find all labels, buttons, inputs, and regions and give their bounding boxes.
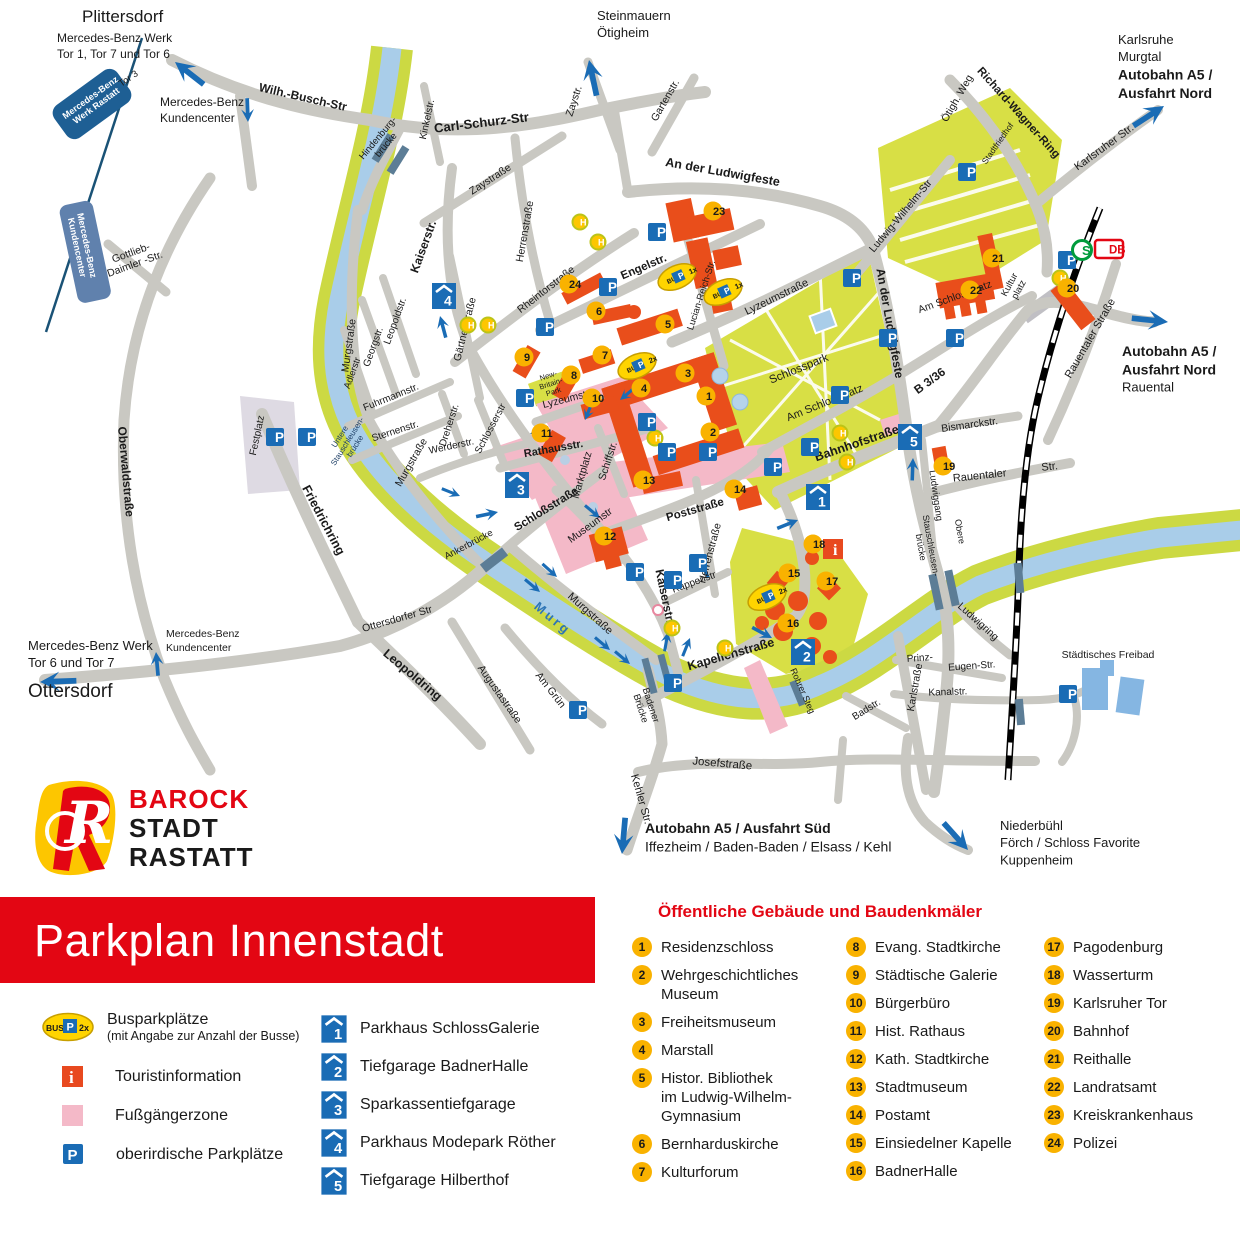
parkhaus-marker: 1 (321, 1015, 346, 1043)
buildings-heading: Öffentliche Gebäude und Baudenkmäler (658, 902, 982, 922)
[object SVGGElement]: 1 (706, 391, 712, 403)
parkhaus-icon: 5 (320, 1166, 348, 1196)
parking-marker: P (958, 163, 976, 181)
buildings-column-3: 17Pagodenburg18Wasserturm19Karlsruher To… (1044, 938, 1240, 1162)
parkhaus-legend-label: Tiefgarage BadnerHalle (360, 1058, 528, 1076)
building-legend-item-3: 3Freiheitsmuseum (632, 1013, 837, 1032)
street-label: Stauschleusen-brücke (911, 514, 942, 579)
building-legend-label: Bahnhof (1073, 1022, 1129, 1041)
building-legend-item-21: 21Reithalle (1044, 1050, 1240, 1069)
[object SVGGElement]: P (673, 573, 682, 588)
[object SVGGElement]: P (307, 430, 316, 445)
building-legend-item-22: 22Landratsamt (1044, 1078, 1240, 1097)
destination-label: Autobahn A5 / Ausfahrt SüdIffezheim / Ba… (645, 820, 891, 854)
building-legend-item-16: 16BadnerHalle (846, 1162, 1051, 1181)
[object SVGGElement]: 12 (604, 531, 616, 543)
legend-sublabel-busparkplaetze: (mit Angabe zur Anzahl der Busse) (107, 1029, 299, 1043)
direction-arrow-icon (1131, 308, 1169, 331)
destination-label: Ottersdorf (28, 681, 113, 702)
building-number-badge: 14 (846, 1105, 866, 1125)
building-number-badge: 23 (1044, 1105, 1064, 1125)
building-number-badge: 4 (632, 1040, 652, 1060)
buildings-column-1: 1Residenzschloss2Wehrgeschichtliches Mus… (632, 938, 837, 1191)
building-number-badge: 7 (632, 1162, 652, 1182)
parkhaus-icon: 4 (320, 1128, 348, 1158)
building-number-badge: 6 (632, 1134, 652, 1154)
[object SVGGElement]: P (698, 556, 707, 571)
[object SVGGElement]: H (672, 623, 679, 633)
building-legend-label: Residenzschloss (661, 938, 774, 957)
[object SVGGElement]: P (955, 331, 964, 346)
poi-marker: 23 (704, 202, 726, 221)
poi-marker: 18 (804, 535, 826, 554)
legend-busparkplaetze: BUS P 2x Busparkplätze (mit Angabe zur A… (42, 1012, 299, 1043)
building-legend-label: Marstall (661, 1041, 714, 1060)
bus-stop-marker: H (573, 215, 588, 230)
parking-marker: P (1059, 685, 1077, 703)
[object SVGGElement]: 23 (713, 206, 725, 218)
building-legend-item-20: 20Bahnhof (1044, 1022, 1240, 1041)
building-number-badge: 3 (632, 1012, 652, 1032)
poi-marker: 9 (515, 348, 534, 367)
bus-stop-marker: H (481, 318, 496, 333)
[object SVGGElement]: P (525, 391, 534, 406)
bus-stop-marker: H (665, 621, 680, 636)
[object SVGGElement]: 11 (541, 428, 553, 440)
street-label: Leopoldring (380, 646, 444, 703)
[object SVGGElement]: P (275, 430, 284, 445)
building-legend-label: Bürgerbüro (875, 994, 950, 1013)
parking-marker: P (658, 443, 676, 461)
direction-arrow-icon (440, 484, 462, 501)
building-legend-label: Karlsruher Tor (1073, 994, 1167, 1013)
bus-parking-icon: BUS P 2x (42, 1012, 94, 1042)
parkhaus-legend-list: 1Parkhaus SchlossGalerie2Tiefgarage Badn… (320, 1010, 556, 1200)
building-number-badge: 16 (846, 1161, 866, 1181)
[object SVGGElement]: 22 (970, 285, 982, 297)
building-number-badge: 20 (1044, 1021, 1064, 1041)
building-legend-label: Städtische Galerie (875, 966, 998, 985)
destination-label: Mercedes-Benz WerkTor 6 und Tor 7 (28, 638, 153, 670)
[object SVGGElement]: 2 (803, 649, 811, 665)
[object SVGGElement]: 21 (992, 253, 1004, 265)
parking-marker: P (638, 413, 656, 431)
building-legend-label: Kath. Stadtkirche (875, 1050, 989, 1069)
[object SVGGElement]: 6 (596, 306, 602, 318)
logo-emblem: R (35, 779, 117, 877)
street-label: Karlsruher Str. (1072, 122, 1136, 173)
destination-label: SteinmauernÖtigheim (597, 8, 671, 40)
[object SVGGElement]: 14 (734, 484, 747, 496)
[object SVGGElement]: S (1082, 243, 1091, 258)
[object SVGGElement]: 18 (813, 539, 825, 551)
poi-marker: 4 (632, 379, 651, 398)
parking-marker: P (664, 571, 682, 589)
[object SVGGElement]: 17 (826, 576, 838, 588)
[object SVGGElement]: H (655, 433, 662, 443)
legend-label-fussgaengerzone: Fußgängerzone (115, 1106, 228, 1125)
building-legend-label: Wehrgeschichtliches Museum (661, 966, 798, 1004)
[object SVGGElement]: 4 (641, 383, 648, 395)
building-number-badge: 10 (846, 993, 866, 1013)
parking-marker: P (843, 269, 861, 287)
bus-stop-marker: H (718, 641, 733, 656)
parking-marker: P (536, 318, 554, 336)
[object SVGGElement]: 20 (1067, 283, 1079, 295)
building-legend-label: Freiheitsmuseum (661, 1013, 776, 1032)
db-marker: DB (1095, 240, 1126, 258)
building-number-badge: 18 (1044, 965, 1064, 985)
[object SVGGElement]: H (580, 217, 587, 227)
parkhaus-icon: 2 (320, 1052, 348, 1082)
[object SVGGElement]: DB (1109, 245, 1126, 257)
svg-text:2x: 2x (79, 1023, 89, 1033)
street-label: Josefstraße (692, 755, 753, 772)
building-number-badge: 15 (846, 1133, 866, 1153)
poi-marker: 19 (934, 457, 956, 476)
parking-marker: P (298, 428, 316, 446)
freibad-buildings (1082, 660, 1144, 715)
parkhaus-legend-label: Parkhaus SchlossGalerie (360, 1020, 540, 1038)
building-legend-label: Polizei (1073, 1134, 1117, 1153)
[object SVGGElement]: 9 (524, 352, 530, 364)
[object SVGGElement]: 8 (571, 370, 577, 382)
parkhaus-legend-label: Sparkassentiefgarage (360, 1096, 516, 1114)
building-legend-label: Kreiskrankenhaus (1073, 1106, 1193, 1125)
destination-label: Autobahn A5 /Ausfahrt NordRauental (1122, 343, 1216, 395)
building-legend-label: Histor. Bibliothek im Ludwig-Wilhelm- Gy… (661, 1069, 792, 1126)
[object SVGGElement]: 4 (444, 293, 452, 309)
parking-marker: P (879, 329, 897, 347)
[object SVGGElement]: P (667, 445, 676, 460)
parkhaus-marker: 4 (321, 1129, 346, 1157)
building-legend-label: Kulturforum (661, 1163, 739, 1182)
destination-label: Mercedes-BenzKundencenter (160, 95, 244, 125)
building-legend-label: Pagodenburg (1073, 938, 1163, 957)
[object SVGGElement]: 2 (710, 427, 716, 439)
bus-stop-marker: H (833, 426, 848, 441)
[object SVGGElement]: H (725, 643, 732, 653)
[object SVGGElement]: 1 (818, 494, 826, 510)
street-label: Tor 3 (117, 68, 141, 89)
destination-label: Mercedes-Benz WerkTor 1, Tor 7 und Tor 6 (57, 31, 173, 61)
surface-parking-icon: P (63, 1144, 83, 1164)
[object SVGGElement]: P (840, 388, 849, 403)
building-legend-label: Stadtmuseum (875, 1078, 968, 1097)
parkhaus-legend-item-2: 2Tiefgarage BadnerHalle (320, 1048, 556, 1086)
bus-stop-marker: H (461, 318, 476, 333)
city-map-canvas: Wilh.-Busch-StrCarl-Schurz-StrZaystr.Kin… (0, 0, 1240, 895)
parkhaus-marker: 5 (898, 424, 922, 450)
parkhaus-legend-item-5: 5Tiefgarage Hilberthof (320, 1162, 556, 1200)
building-legend-item-13: 13Stadtmuseum (846, 1078, 1051, 1097)
building-legend-label: Wasserturm (1073, 966, 1153, 985)
parkhaus-legend-item-1: 1Parkhaus SchlossGalerie (320, 1010, 556, 1048)
[object SVGGElement]: 16 (787, 618, 799, 630)
legend-touristinformation: i Touristinformation (62, 1066, 241, 1087)
logo-text: BAROCK STADT RASTATT (129, 785, 253, 872)
direction-arrow-icon (434, 314, 451, 339)
[object SVGGElement]: P (967, 165, 976, 180)
building-legend-item-18: 18Wasserturm (1044, 966, 1240, 985)
parkhaus-legend-item-4: 4Parkhaus Modepark Röther (320, 1124, 556, 1162)
building-number-badge: 24 (1044, 1133, 1064, 1153)
building-legend-item-15: 15Einsiedelner Kapelle (846, 1134, 1051, 1153)
parking-marker: P (764, 458, 782, 476)
parking-marker: P (831, 386, 849, 404)
svg-text:i: i (69, 1068, 74, 1087)
legend-fussgaengerzone: Fußgängerzone (62, 1105, 228, 1126)
building-legend-label: Hist. Rathaus (875, 1022, 965, 1041)
building-legend-label: Reithalle (1073, 1050, 1131, 1069)
[object SVGGElement]: 7 (602, 350, 608, 362)
poi-marker: 1 (697, 387, 716, 406)
building-number-badge: 19 (1044, 993, 1064, 1013)
building-legend-label: Einsiedelner Kapelle (875, 1134, 1012, 1153)
building-legend-item-8: 8Evang. Stadtkirche (846, 938, 1051, 957)
parkhaus-marker: 3 (505, 472, 529, 498)
building-legend-item-9: 9Städtische Galerie (846, 966, 1051, 985)
building-legend-item-7: 7Kulturforum (632, 1163, 837, 1182)
poi-marker: 24 (560, 275, 583, 294)
[object SVGGElement]: 2 (334, 1065, 342, 1081)
street-label: Eugen-Str. (948, 659, 996, 673)
poi-marker: 14 (725, 480, 748, 499)
building-number-badge: 9 (846, 965, 866, 985)
svg-text:P: P (67, 1022, 74, 1034)
buildings-column-2: 8Evang. Stadtkirche9Städtische Galerie10… (846, 938, 1051, 1190)
destination-label: Mercedes-BenzKundencenter (166, 628, 240, 654)
[object SVGGElement]: 3 (685, 368, 691, 380)
building-legend-item-10: 10Bürgerbüro (846, 994, 1051, 1013)
title-banner: Parkplan Innenstadt (0, 897, 595, 983)
building-legend-label: Landratsamt (1073, 1078, 1156, 1097)
[object SVGGElement]: H (840, 428, 847, 438)
[object SVGGElement]: 3 (334, 1103, 342, 1119)
poi-marker: 2 (701, 423, 720, 442)
logo-line2: STADT (129, 814, 253, 843)
[object SVGGElement]: H (847, 457, 854, 467)
parkhaus-marker: 3 (321, 1091, 346, 1119)
parking-marker: P (599, 278, 617, 296)
building-number-badge: 5 (632, 1068, 652, 1088)
parkhaus-legend-label: Parkhaus Modepark Röther (360, 1134, 556, 1152)
destination-label: Plittersdorf (82, 7, 164, 26)
parkhaus-marker: 2 (791, 639, 815, 665)
[object SVGGElement]: P (888, 331, 897, 346)
building-number-badge: 22 (1044, 1077, 1064, 1097)
parkhaus-marker: 2 (321, 1053, 346, 1081)
street-label: Städtisches Freibad (1062, 649, 1155, 661)
parkhaus-legend-item-3: 3Sparkassentiefgarage (320, 1086, 556, 1124)
[object SVGGElement]: 24 (569, 279, 582, 291)
parking-marker: P (569, 701, 587, 719)
bus-stop-marker: H (591, 235, 606, 250)
building-legend-item-5: 5Histor. Bibliothek im Ludwig-Wilhelm- G… (632, 1069, 837, 1126)
building-legend-item-1: 1Residenzschloss (632, 938, 837, 957)
building-legend-item-24: 24Polizei (1044, 1134, 1240, 1153)
parking-marker: P (699, 443, 717, 461)
building-number-badge: 8 (846, 937, 866, 957)
poi-marker: 20 (1058, 279, 1080, 298)
[object SVGGElement]: P (578, 703, 587, 718)
poi-marker: 7 (593, 346, 612, 365)
building-legend-label: Evang. Stadtkirche (875, 938, 1001, 957)
svg-text:BUS: BUS (46, 1023, 64, 1033)
building-legend-label: Bernharduskirche (661, 1135, 779, 1154)
street-label: Kaiserstr. (407, 219, 439, 275)
[object SVGGElement]: 1 (334, 1027, 342, 1043)
parkhaus-marker: 5 (321, 1167, 346, 1195)
[object SVGGElement]: i (833, 542, 838, 559)
building-number-badge: 13 (846, 1077, 866, 1097)
direction-arrow-icon (678, 636, 695, 658)
legend-oberirdische-parkplaetze: P oberirdische Parkplätze (63, 1144, 283, 1164)
poi-marker: 8 (562, 366, 581, 385)
parking-marker: P (801, 438, 819, 456)
[object SVGGElement]: P (1068, 687, 1077, 702)
poi-marker: 3 (676, 364, 695, 383)
page-title: Parkplan Innenstadt (0, 897, 595, 967)
building-legend-item-6: 6Bernharduskirche (632, 1135, 837, 1154)
building-legend-item-11: 11Hist. Rathaus (846, 1022, 1051, 1041)
logo-line1: BAROCK (129, 785, 253, 814)
building-legend-item-14: 14Postamt (846, 1106, 1051, 1125)
building-number-badge: 2 (632, 965, 652, 985)
[object SVGGElement]: 5 (665, 319, 671, 331)
parkplan-page: Wilh.-Busch-StrCarl-Schurz-StrZaystr.Kin… (0, 0, 1240, 1240)
building-legend-item-17: 17Pagodenburg (1044, 938, 1240, 957)
building-legend-label: Postamt (875, 1106, 930, 1125)
poi-marker: 6 (587, 302, 606, 321)
street-label: Kanalstr. (928, 686, 967, 698)
sbahn-marker: S (1073, 241, 1092, 260)
street-label: Zaystraße (467, 161, 513, 197)
destination-label: NiederbühlFörch / Schloss FavoriteKuppen… (1000, 818, 1140, 867)
parking-marker: P (946, 329, 964, 347)
barock-stadt-rastatt-logo: R BAROCK STADT RASTATT (35, 778, 295, 878)
building-legend-label: BadnerHalle (875, 1162, 958, 1181)
legend-label-busparkplaetze: Busparkplätze (107, 1010, 299, 1029)
building-number-badge: 11 (846, 1021, 866, 1041)
parking-marker: P (689, 554, 707, 572)
street-label: Werderstr. (428, 436, 475, 456)
[object SVGGElement]: P (657, 225, 666, 240)
parking-marker: P (516, 389, 534, 407)
tourist-info-marker: i (823, 539, 843, 559)
[object SVGGElement]: H (488, 320, 495, 330)
parking-marker: P (664, 674, 682, 692)
building-legend-item-4: 4Marstall (632, 1041, 837, 1060)
bus-stop-marker: H (840, 455, 855, 470)
tourist-info-icon: i (62, 1066, 83, 1087)
[object SVGGElement]: 10 (592, 393, 604, 405)
[object SVGGElement]: P (635, 565, 644, 580)
street-label: Prinz- (906, 652, 933, 665)
building-legend-item-19: 19Karlsruher Tor (1044, 994, 1240, 1013)
[object SVGGElement]: 5 (334, 1179, 342, 1195)
[object SVGGElement]: P (647, 415, 656, 430)
destination-label: KarlsruheMurgtalAutobahn A5 /Ausfahrt No… (1118, 32, 1212, 101)
building-number-badge: 17 (1044, 937, 1064, 957)
parkhaus-icon: 1 (320, 1014, 348, 1044)
direction-arrow-icon (475, 506, 499, 522)
building-number-badge: 21 (1044, 1049, 1064, 1069)
legend-label-oberirdische-parkplaetze: oberirdische Parkplätze (116, 1145, 283, 1164)
street-label: Str. (1041, 460, 1059, 474)
[object SVGGElement]: P (852, 271, 861, 286)
parking-marker: P (648, 223, 666, 241)
[object SVGGElement]: P (608, 280, 617, 295)
[object SVGGElement]: 3 (517, 482, 525, 498)
pedestrian-zone-icon (62, 1105, 83, 1126)
svg-text:P: P (68, 1147, 78, 1164)
building-legend-item-2: 2Wehrgeschichtliches Museum (632, 966, 837, 1004)
logo-line3: RASTATT (129, 843, 253, 872)
building-number-badge: 1 (632, 937, 652, 957)
parking-marker: P (626, 563, 644, 581)
parkhaus-icon: 3 (320, 1090, 348, 1120)
street-label: Augustastraße (475, 663, 524, 726)
[object SVGGElement]: P (545, 320, 554, 335)
[object SVGGElement]: H (598, 237, 605, 247)
building-number-badge: 12 (846, 1049, 866, 1069)
poi-marker: 5 (656, 315, 675, 334)
building-legend-item-12: 12Kath. Stadtkirche (846, 1050, 1051, 1069)
street-label: Obere (953, 518, 967, 544)
[object SVGGElement]: 5 (910, 434, 918, 450)
[object SVGGElement]: P (810, 440, 819, 455)
[object SVGGElement]: 4 (334, 1141, 343, 1157)
building-legend-item-23: 23Kreiskrankenhaus (1044, 1106, 1240, 1125)
[object SVGGElement]: H (468, 320, 475, 330)
parkhaus-marker: 4 (432, 283, 456, 309)
[object SVGGElement]: P (773, 460, 782, 475)
parking-marker: P (266, 428, 284, 446)
legend-label-touristinformation: Touristinformation (115, 1067, 241, 1086)
[object SVGGElement]: P (673, 676, 682, 691)
[object SVGGElement]: P (708, 445, 717, 460)
parkhaus-legend-label: Tiefgarage Hilberthof (360, 1172, 509, 1190)
[object SVGGElement]: 13 (643, 475, 655, 487)
parkhaus-marker: 1 (806, 484, 830, 510)
[object SVGGElement]: 19 (943, 461, 955, 473)
[object SVGGElement]: 15 (788, 568, 800, 580)
